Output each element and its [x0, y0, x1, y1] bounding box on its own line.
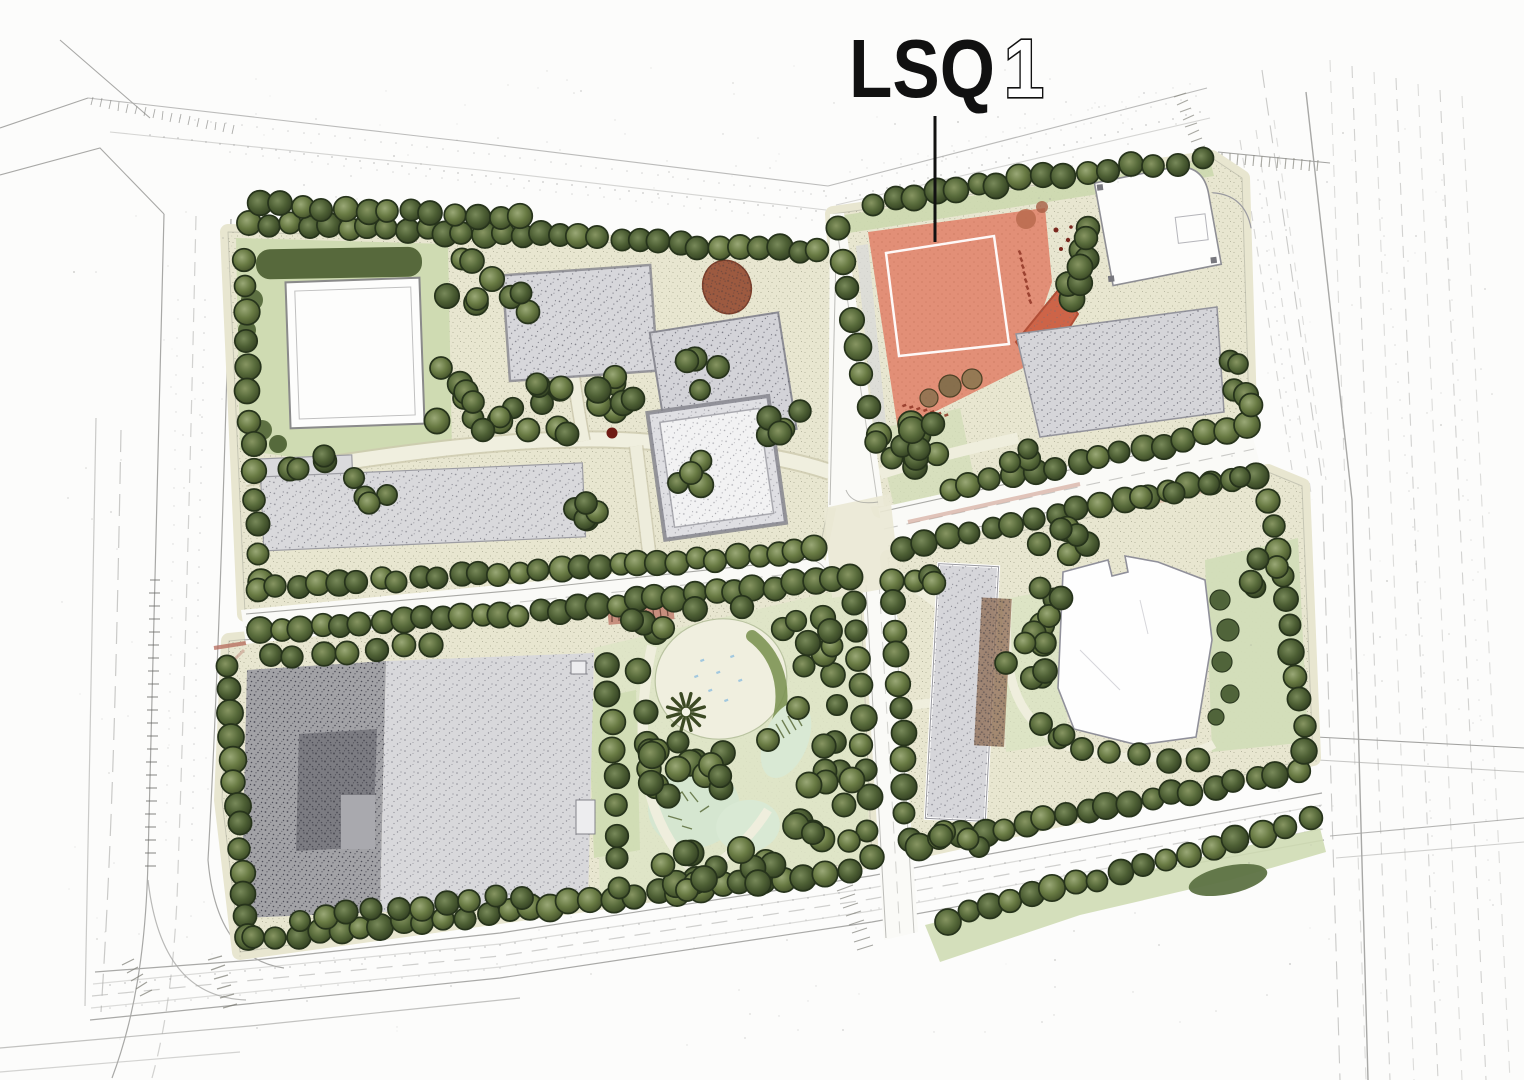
svg-text:1: 1: [1004, 22, 1044, 115]
svg-text:LSQ: LSQ: [849, 22, 995, 115]
